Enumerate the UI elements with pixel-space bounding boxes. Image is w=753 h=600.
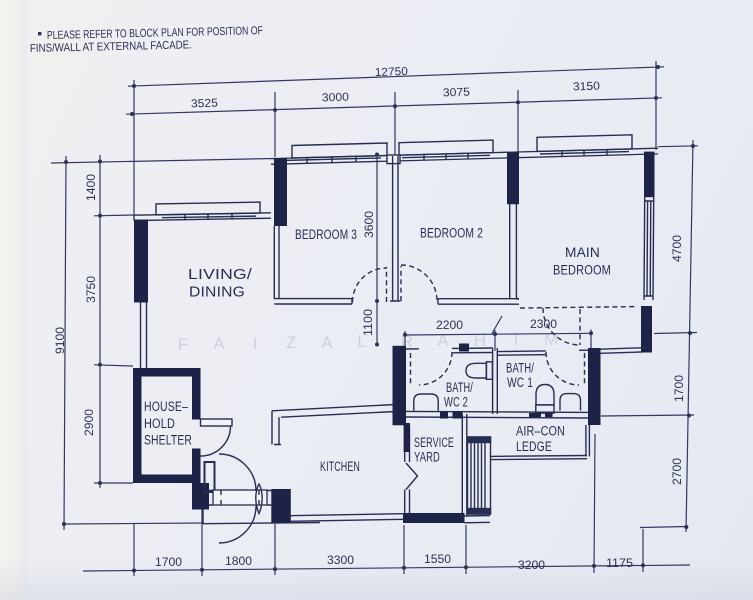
svg-text:SHELTER: SHELTER — [144, 433, 192, 448]
svg-text:FINS/WALL AT EXTERNAL FACADE.: FINS/WALL AT EXTERNAL FACADE. — [30, 39, 192, 55]
svg-text:3600: 3600 — [364, 211, 376, 238]
svg-text:Z: Z — [286, 334, 296, 352]
svg-text:AIR–CON: AIR–CON — [516, 424, 565, 439]
svg-text:BEDROOM 3: BEDROOM 3 — [295, 227, 357, 242]
svg-text:HOUSE–: HOUSE– — [144, 399, 188, 414]
svg-text:2300: 2300 — [530, 319, 557, 331]
svg-text:2200: 2200 — [436, 320, 463, 332]
svg-text:SERVICE: SERVICE — [414, 435, 454, 450]
svg-text:BATH/: BATH/ — [446, 380, 473, 395]
svg-text:LIVING/: LIVING/ — [188, 266, 253, 283]
svg-text:9100: 9100 — [55, 327, 67, 354]
svg-text:4700: 4700 — [672, 235, 684, 262]
svg-text:BATH/: BATH/ — [506, 361, 534, 376]
svg-text:2900: 2900 — [84, 409, 96, 436]
svg-text:2700: 2700 — [672, 458, 684, 485]
svg-text:LEDGE: LEDGE — [516, 439, 552, 454]
svg-text:WC 2: WC 2 — [444, 395, 468, 410]
svg-text:MAIN: MAIN — [565, 245, 600, 260]
svg-text:3150: 3150 — [573, 81, 600, 94]
svg-text:I: I — [253, 335, 258, 353]
svg-text:1550: 1550 — [424, 554, 451, 566]
svg-text:BEDROOM: BEDROOM — [553, 263, 611, 278]
svg-text:KITCHEN: KITCHEN — [320, 459, 360, 474]
svg-text:HOLD: HOLD — [144, 416, 175, 431]
svg-text:F: F — [178, 336, 188, 354]
svg-text:WC 1: WC 1 — [507, 375, 533, 390]
svg-text:1400: 1400 — [86, 174, 98, 201]
svg-text:A: A — [213, 335, 224, 353]
svg-text:DINING: DINING — [189, 284, 245, 301]
svg-text:3075: 3075 — [443, 87, 470, 100]
svg-text:1175: 1175 — [606, 558, 633, 570]
svg-text:YARD: YARD — [414, 450, 440, 465]
svg-text:3200: 3200 — [518, 560, 545, 572]
svg-text:12750: 12750 — [375, 66, 408, 79]
svg-text:3000: 3000 — [322, 92, 349, 105]
svg-text:3300: 3300 — [327, 555, 354, 567]
svg-text:3750: 3750 — [86, 276, 98, 303]
svg-text:A: A — [321, 334, 332, 352]
svg-text:1700: 1700 — [674, 375, 686, 402]
svg-text:BEDROOM 2: BEDROOM 2 — [420, 226, 483, 241]
svg-text:3525: 3525 — [191, 98, 218, 111]
svg-text:1100: 1100 — [363, 309, 375, 336]
svg-text:1800: 1800 — [225, 556, 252, 568]
svg-text:1700: 1700 — [155, 557, 182, 569]
